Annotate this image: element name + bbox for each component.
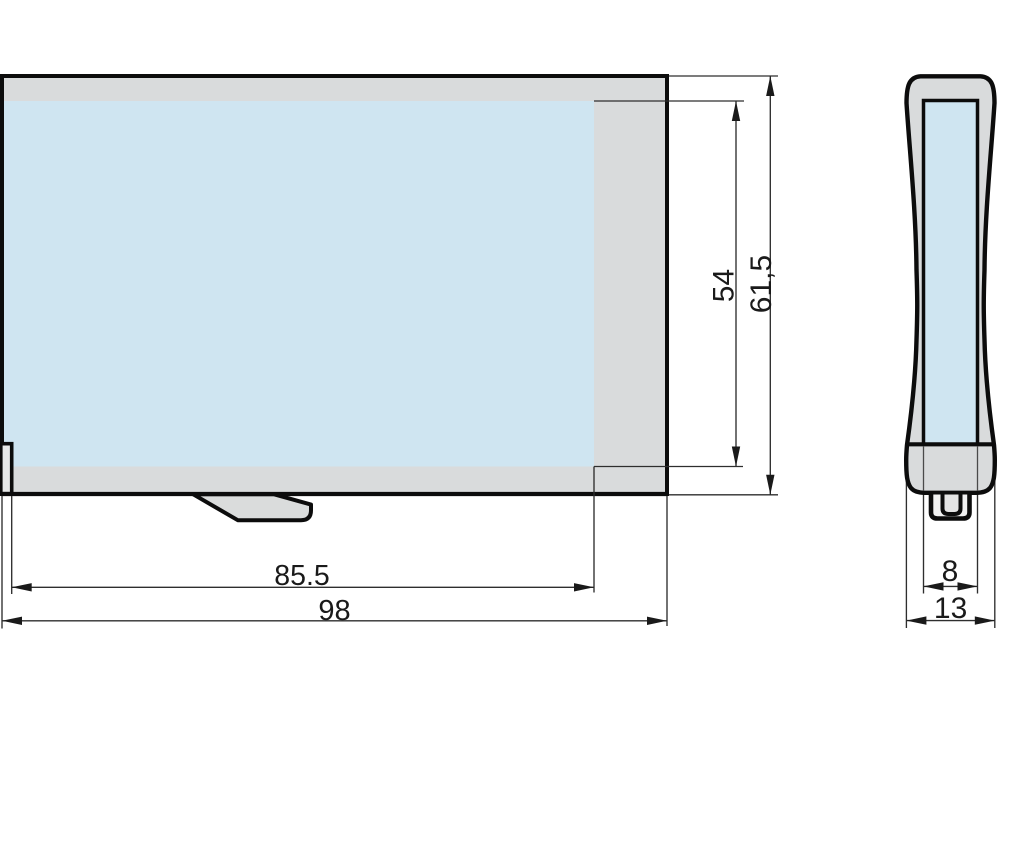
svg-text:98: 98 [318, 595, 350, 627]
svg-text:8: 8 [942, 555, 959, 588]
svg-text:61,5: 61,5 [745, 255, 778, 313]
svg-text:54: 54 [708, 269, 741, 302]
svg-text:13: 13 [934, 592, 967, 625]
svg-text:85.5: 85.5 [274, 560, 329, 592]
